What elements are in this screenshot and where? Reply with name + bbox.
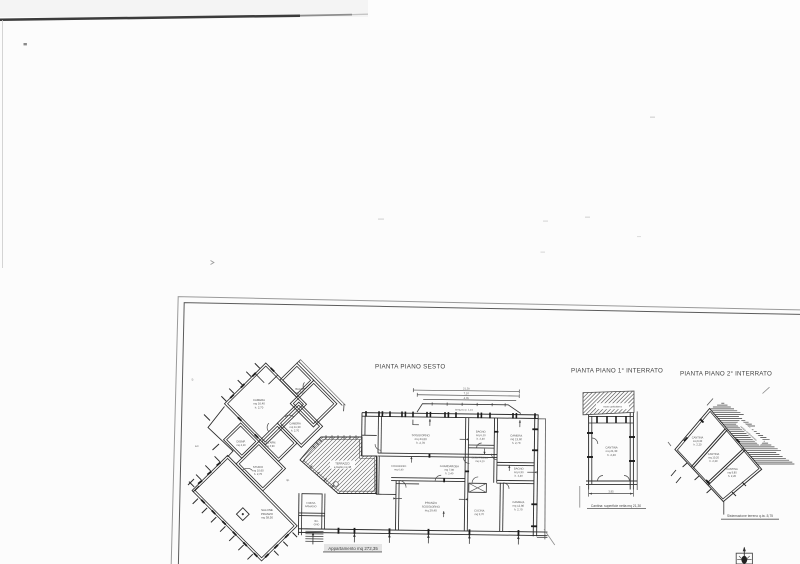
svg-text:CANTINA: CANTINA xyxy=(726,467,738,471)
svg-text:BAGNO: BAGNO xyxy=(476,429,486,433)
svg-text:4,05: 4,05 xyxy=(464,396,470,400)
svg-text:21,30: 21,30 xyxy=(463,387,470,391)
svg-text:mq 6,90: mq 6,90 xyxy=(514,470,524,474)
svg-text:TERRAZZO: TERRAZZO xyxy=(335,462,349,466)
svg-text:mq 11,30: mq 11,30 xyxy=(289,425,301,429)
svg-text:PIANTA PIANO 2° INTERRATO: PIANTA PIANO 2° INTERRATO xyxy=(680,371,772,378)
svg-text:h. 2,40: h. 2,40 xyxy=(477,437,486,441)
svg-text:a livello mq 48: a livello mq 48 xyxy=(334,465,352,469)
svg-text:h. 2,70: h. 2,70 xyxy=(254,472,263,476)
svg-text:h. 2,20: h. 2,20 xyxy=(710,459,718,463)
svg-text:GUARDAROBA: GUARDAROBA xyxy=(440,464,459,468)
svg-text:mq 10,20: mq 10,20 xyxy=(708,456,719,460)
svg-text:mq 9,70: mq 9,70 xyxy=(474,512,484,516)
svg-text:rip.: rip. xyxy=(286,479,290,482)
svg-text:h. 2,20: h. 2,20 xyxy=(694,443,702,447)
svg-text:CANTINA: CANTINA xyxy=(708,452,720,456)
svg-text:GNO: GNO xyxy=(314,523,320,526)
svg-text:h. 2,40: h. 2,40 xyxy=(607,453,616,457)
svg-text:mq 4,10: mq 4,10 xyxy=(236,444,246,447)
svg-text:h. 2,70: h. 2,70 xyxy=(255,405,264,409)
svg-text:mq 9,40: mq 9,40 xyxy=(693,439,703,443)
svg-text:PIANTA PIANO 1° INTERRATO: PIANTA PIANO 1° INTERRATO xyxy=(571,368,663,375)
svg-text:BAGNO: BAGNO xyxy=(295,387,304,391)
svg-text:mq 7,80: mq 7,80 xyxy=(444,468,454,472)
svg-text:mq 6,40: mq 6,40 xyxy=(394,467,404,471)
svg-text:CAMERA: CAMERA xyxy=(289,422,301,426)
svg-text:ARMADIO: ARMADIO xyxy=(305,505,317,508)
svg-text:9: 9 xyxy=(192,378,194,382)
svg-text:7,10: 7,10 xyxy=(464,391,470,395)
svg-text:h. 2,40: h. 2,40 xyxy=(445,471,454,475)
svg-text:h. 2,70: h. 2,70 xyxy=(514,507,523,511)
svg-text:h. 2,70: h. 2,70 xyxy=(512,441,521,445)
svg-text:terr.: terr. xyxy=(195,445,199,448)
svg-text:muro controterra: muro controterra xyxy=(603,406,622,409)
svg-text:mq 3,20: mq 3,20 xyxy=(475,459,485,463)
svg-text:h. 2,40: h. 2,40 xyxy=(515,474,524,478)
svg-text:Appartamento mq 272,35: Appartamento mq 272,35 xyxy=(328,546,378,551)
svg-text:3,95: 3,95 xyxy=(608,489,614,493)
svg-text:mq 9,80: mq 9,80 xyxy=(727,471,737,475)
svg-text:mq 6,10: mq 6,10 xyxy=(476,433,486,437)
svg-text:CUCINA: CUCINA xyxy=(474,508,485,512)
svg-text:BAGNO: BAGNO xyxy=(514,466,524,470)
svg-text:mq 29,40: mq 29,40 xyxy=(425,508,437,512)
svg-text:terrazzo p. 1,10: terrazzo p. 1,10 xyxy=(455,408,474,412)
svg-text:DISIMPEGNO: DISIMPEGNO xyxy=(472,455,489,459)
svg-text:Cantina: superficie netta mq 2: Cantina: superficie netta mq 21,30 xyxy=(591,504,641,508)
svg-text:mq 10,60: mq 10,60 xyxy=(252,469,264,473)
svg-text:Sistemazione terreno q.ta -5,7: Sistemazione terreno q.ta -5,75 xyxy=(727,514,773,518)
svg-text:mq 38,50: mq 38,50 xyxy=(261,516,273,520)
svg-text:h. 2,20: h. 2,20 xyxy=(728,474,736,478)
svg-text:mq 3,90: mq 3,90 xyxy=(265,445,275,448)
svg-text:CANTINA: CANTINA xyxy=(692,436,704,440)
svg-text:h. 2,70: h. 2,70 xyxy=(291,429,300,433)
svg-text:mq 7,20: mq 7,20 xyxy=(295,391,305,395)
svg-text:PIANTA PIANO SESTO: PIANTA PIANO SESTO xyxy=(375,364,446,371)
svg-text:STUDIO: STUDIO xyxy=(253,465,263,469)
svg-text:h. 2,70: h. 2,70 xyxy=(416,441,425,445)
svg-text:3,10: 3,10 xyxy=(383,412,389,415)
